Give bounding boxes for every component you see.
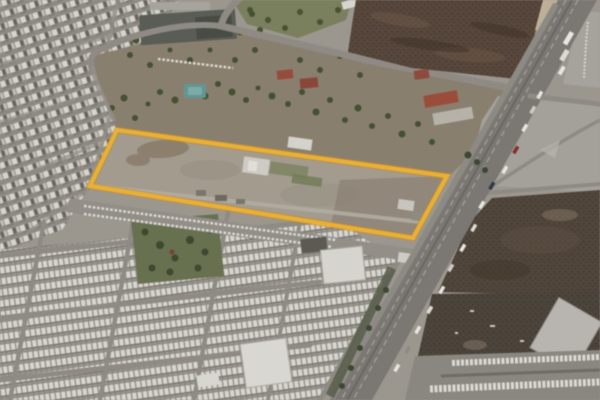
red-roof-house	[277, 69, 294, 80]
aerial-imagery	[0, 0, 600, 400]
red-roof-house	[300, 77, 319, 89]
industrial-yard	[405, 292, 600, 400]
satellite-map-view[interactable]	[0, 0, 600, 400]
